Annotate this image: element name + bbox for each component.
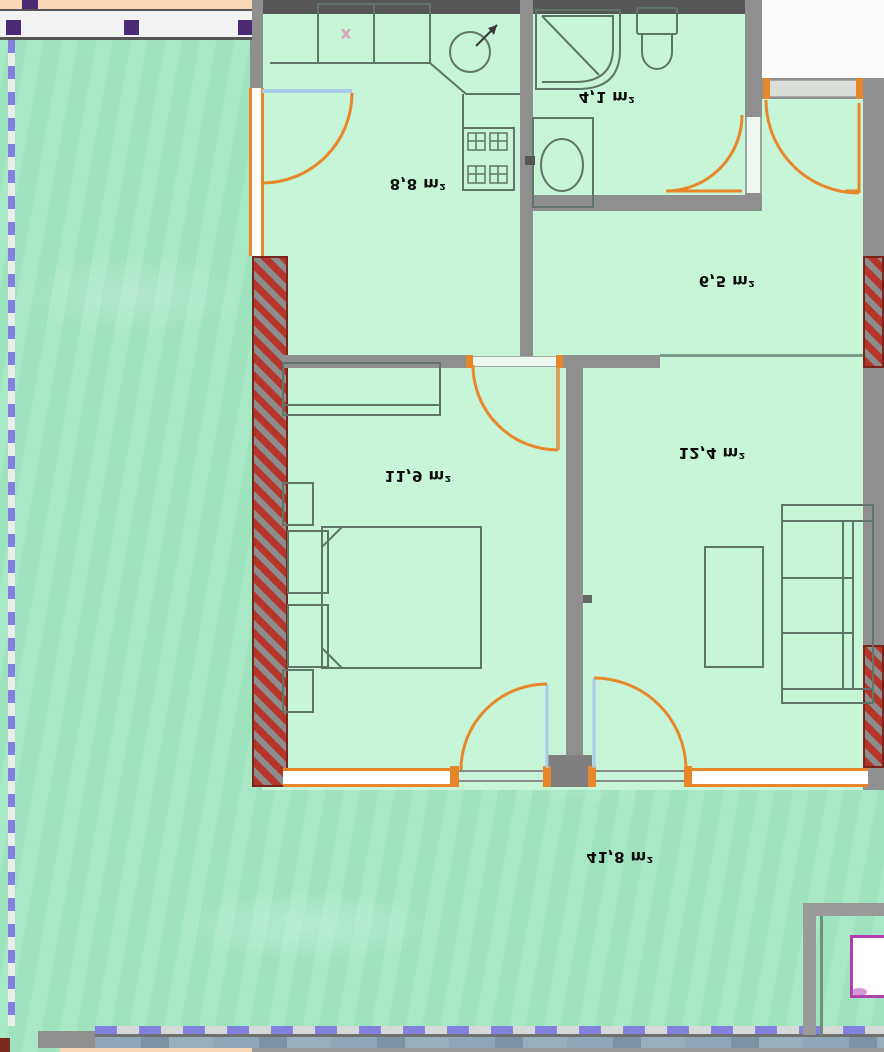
divider-handle-mark	[583, 595, 592, 603]
room-area-label-kitchen: 8,8 m²	[390, 175, 446, 193]
bedroom-door-threshold	[473, 356, 556, 367]
top-exterior-wall	[262, 0, 757, 14]
porch-inner-line	[820, 916, 823, 1035]
bottom-left-block	[38, 1031, 95, 1048]
terrace-door-threshold-left	[459, 770, 543, 782]
right-masonry-column-upper	[863, 256, 884, 368]
bedroom-living-divider	[566, 368, 583, 758]
terrace-door-jamb-3	[588, 766, 596, 787]
bottom-band-peach	[60, 1048, 252, 1052]
room-area-label-living: 12,4 m²	[678, 444, 745, 462]
bottom-band-gray	[252, 1048, 884, 1052]
railing-post-2	[124, 20, 139, 35]
kitchen-window-band	[249, 88, 264, 256]
railing-corner-post	[22, 0, 38, 9]
terrace-door-jamb-2	[543, 766, 551, 787]
bottom-pavement-texture	[95, 1037, 884, 1048]
room-area-label-bathroom: 4,1 m²	[579, 88, 635, 106]
middle-wall-left	[283, 355, 470, 368]
middle-wall-right	[563, 355, 660, 368]
bottom-glazed-wall-left	[283, 768, 450, 787]
bathroom-bottom-wall	[520, 195, 762, 211]
bathroom-door-threshold	[745, 117, 762, 193]
room-area-label-hall: 6,5 m²	[699, 272, 755, 290]
kitchen-appliance-x-mark: x	[341, 24, 352, 44]
kitchen-hall-wall	[520, 0, 533, 357]
left-masonry-column	[252, 256, 288, 787]
entry-door-jamb-right	[856, 78, 863, 99]
right-wall-upper	[863, 78, 884, 256]
entry-door-jamb-left	[763, 78, 770, 99]
room-area-label-bedroom: 11,9 m²	[384, 467, 451, 485]
entry-door-threshold	[770, 80, 856, 97]
divider-foot-block	[548, 755, 592, 787]
apartment-floor	[262, 8, 863, 790]
bathroom-right-wall-upper	[745, 0, 762, 117]
right-wall-middle	[863, 368, 884, 645]
right-masonry-column-lower	[863, 645, 884, 768]
bottom-glazed-wall-right	[692, 768, 868, 787]
terrace-border-left-dashed	[8, 40, 15, 1026]
room-area-label-terrace: 41,8 m²	[586, 848, 653, 866]
bathroom-right-wall-lower	[745, 193, 762, 211]
porch-magenta-smudge	[852, 988, 867, 996]
terrace-door-threshold-right	[596, 770, 684, 782]
terrace-door-jamb-1	[450, 766, 459, 787]
hall-living-boundary-line	[660, 354, 863, 357]
bedroom-door-jamb-right	[556, 355, 563, 368]
bottom-left-red-mark	[0, 1038, 10, 1052]
terrace-door-jamb-4	[684, 766, 692, 787]
outside-area	[757, 0, 884, 78]
bedroom-door-jamb-left	[466, 355, 473, 368]
floor-plan-canvas: 8,8 m² 4,1 m² 6,5 m² 11,9 m² 12,4 m² 41,…	[0, 0, 884, 1052]
railing-post-1	[6, 20, 21, 35]
railing-post-3	[238, 20, 252, 35]
